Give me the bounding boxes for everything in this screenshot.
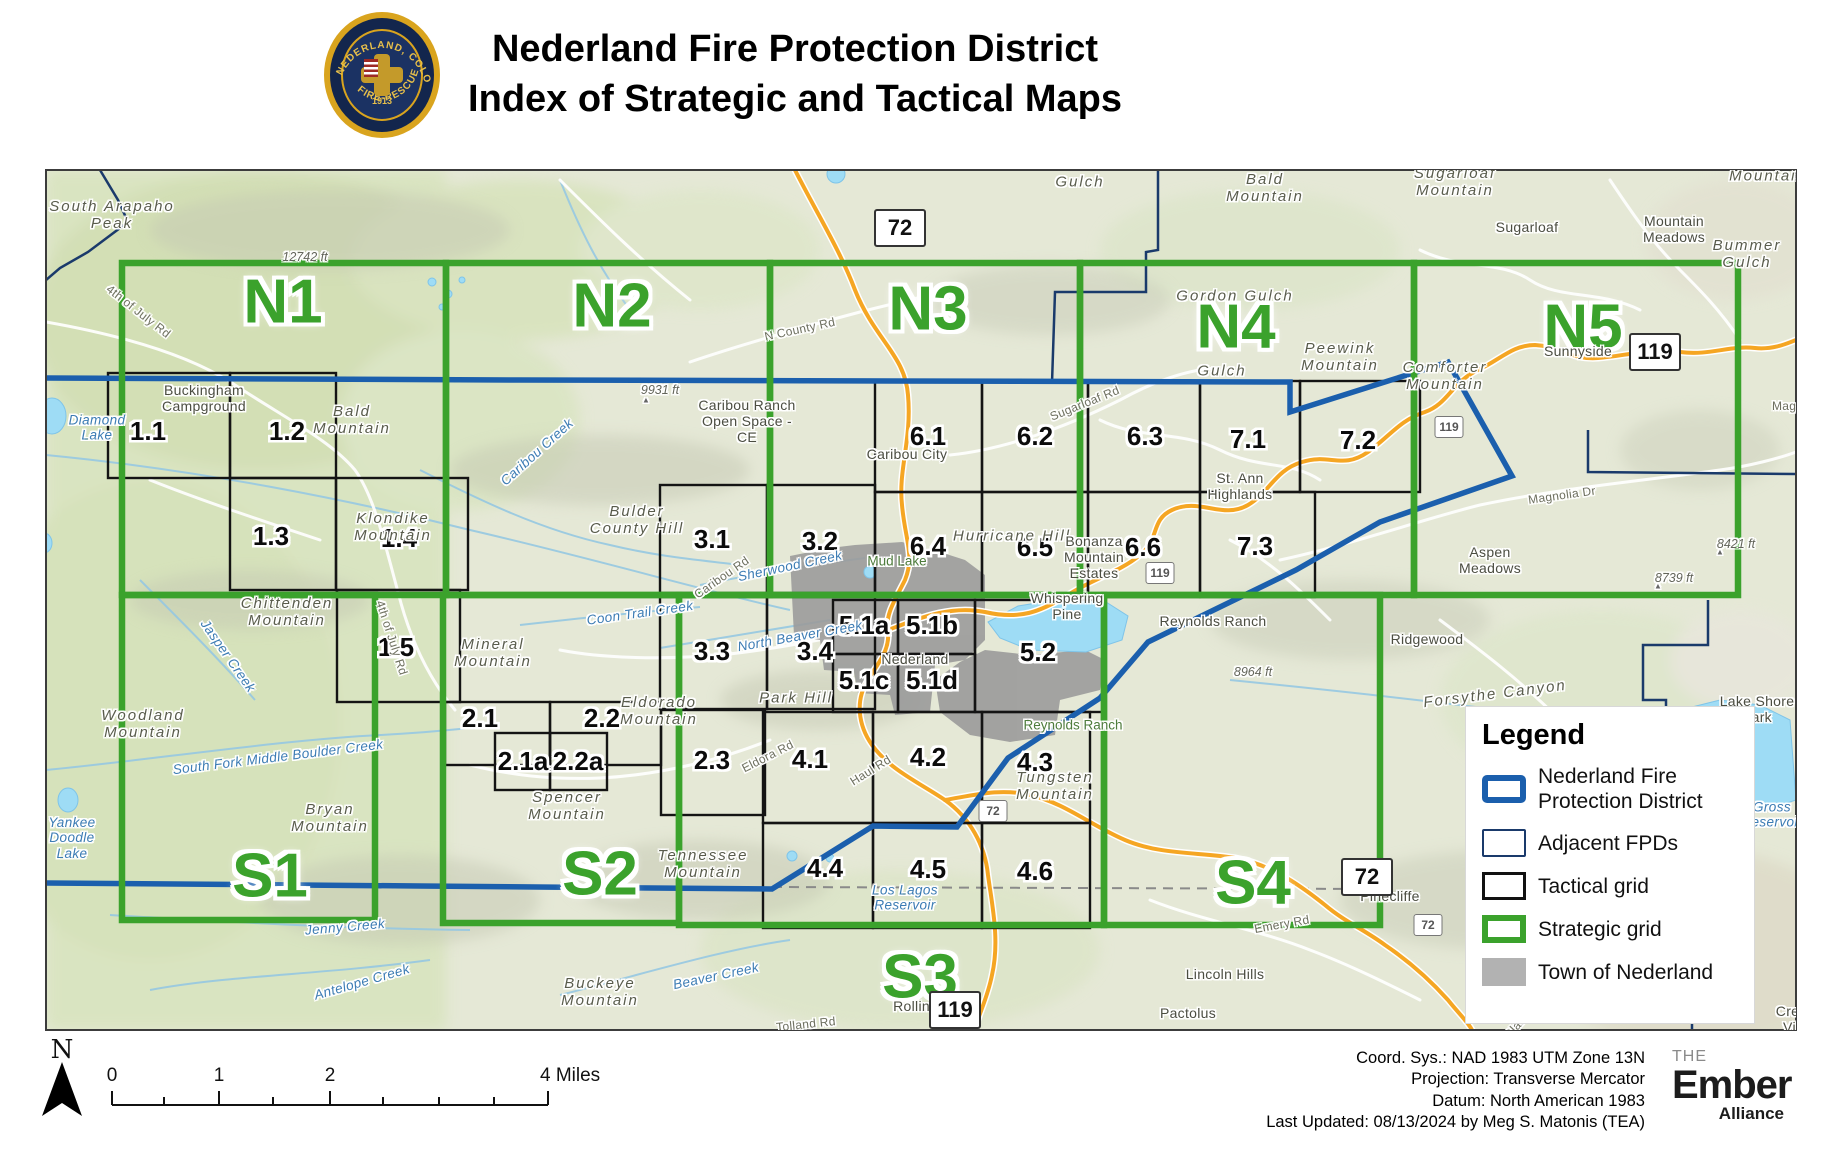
credit-datum: Datum: North American 1983 <box>1145 1091 1645 1112</box>
ember-alliance-logo: THE Ember Alliance <box>1672 1048 1792 1124</box>
legend: Legend Nederland Fire Protection Distric… <box>1465 706 1755 1024</box>
tactical-grid-swatch-icon <box>1482 872 1526 900</box>
map-document: NEDERLAND, COLORADO FIRE-RESCUE 1913 Ned… <box>0 0 1842 1150</box>
credit-last-updated: Last Updated: 08/13/2024 by Meg S. Maton… <box>1145 1112 1645 1133</box>
legend-item-strategic: Strategic grid <box>1482 915 1738 943</box>
legend-title: Legend <box>1482 719 1738 752</box>
adjacent-fpd-swatch-icon <box>1482 829 1526 857</box>
legend-item-tactical: Tactical grid <box>1482 872 1738 900</box>
scale-bar <box>112 1091 548 1105</box>
scale-bar-tick-label: 1 <box>214 1065 225 1087</box>
legend-item-adjacent: Adjacent FPDs <box>1482 829 1738 857</box>
town-fill-swatch-icon <box>1482 958 1526 986</box>
credit-projection: Projection: Transverse Mercator <box>1145 1069 1645 1090</box>
legend-item-town: Town of Nederland <box>1482 958 1738 986</box>
scale-bar-tick-label: 0 <box>107 1065 118 1087</box>
map-credits: Coord. Sys.: NAD 1983 UTM Zone 13N Proje… <box>1145 1048 1645 1134</box>
scale-bar-tick-label: 2 <box>325 1065 336 1087</box>
district-boundary-swatch-icon <box>1482 775 1526 803</box>
north-label: N <box>51 1035 74 1065</box>
legend-item-district: Nederland Fire Protection District <box>1482 764 1738 814</box>
scale-bar-tick-label: 4 Miles <box>540 1065 600 1087</box>
strategic-grid-swatch-icon <box>1482 915 1526 943</box>
credit-coord-sys: Coord. Sys.: NAD 1983 UTM Zone 13N <box>1145 1048 1645 1069</box>
